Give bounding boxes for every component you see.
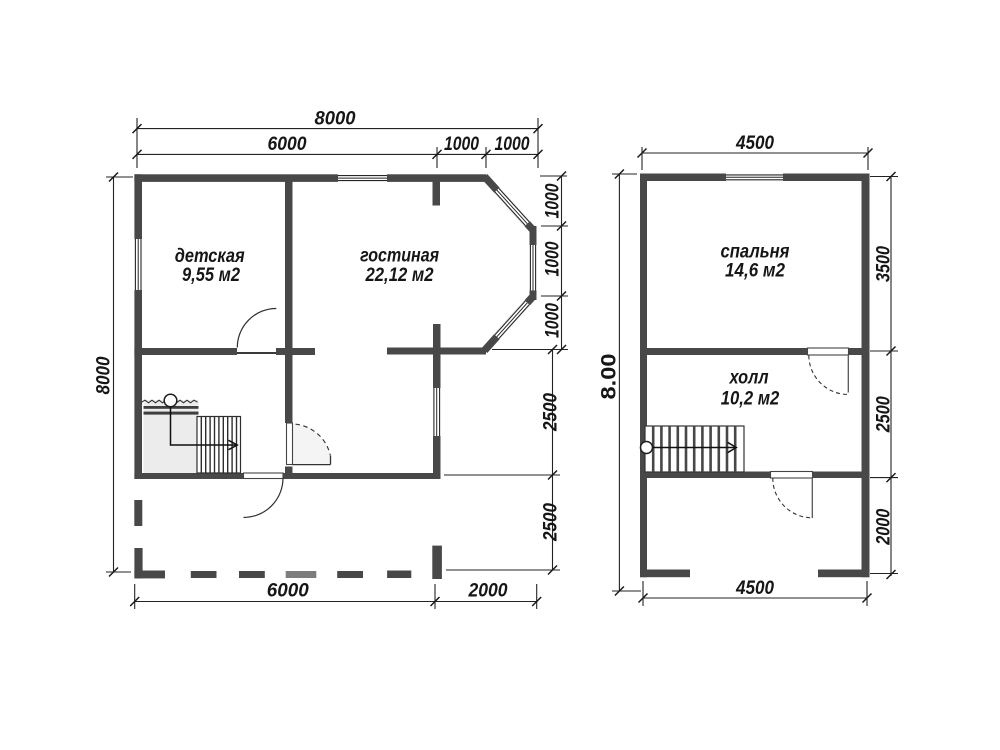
svg-text:3500: 3500 (873, 246, 894, 282)
svg-text:холл: холл (729, 367, 769, 388)
svg-text:4500: 4500 (735, 578, 774, 599)
svg-text:1000: 1000 (543, 241, 564, 276)
svg-text:2500: 2500 (541, 393, 562, 432)
svg-text:8000: 8000 (315, 109, 356, 130)
svg-text:1000: 1000 (444, 134, 479, 155)
svg-text:6000: 6000 (267, 581, 309, 602)
svg-text:2000: 2000 (468, 581, 508, 602)
svg-text:2500: 2500 (541, 503, 562, 542)
svg-text:8.00: 8.00 (598, 354, 621, 400)
svg-text:4500: 4500 (735, 133, 774, 154)
svg-text:детская: детская (175, 246, 245, 267)
svg-text:14,6 м2: 14,6 м2 (725, 261, 785, 282)
svg-text:2000: 2000 (873, 508, 894, 545)
svg-text:8000: 8000 (94, 356, 115, 394)
svg-text:1000: 1000 (543, 303, 564, 338)
svg-text:9,55 м2: 9,55 м2 (182, 265, 240, 286)
svg-text:1000: 1000 (495, 134, 530, 155)
svg-text:10,2 м2: 10,2 м2 (721, 388, 780, 409)
svg-text:гостиная: гостиная (360, 246, 439, 267)
svg-text:6000: 6000 (268, 134, 307, 155)
svg-text:1000: 1000 (543, 183, 564, 218)
svg-text:22,12 м2: 22,12 м2 (365, 265, 434, 286)
svg-text:2500: 2500 (873, 396, 894, 433)
